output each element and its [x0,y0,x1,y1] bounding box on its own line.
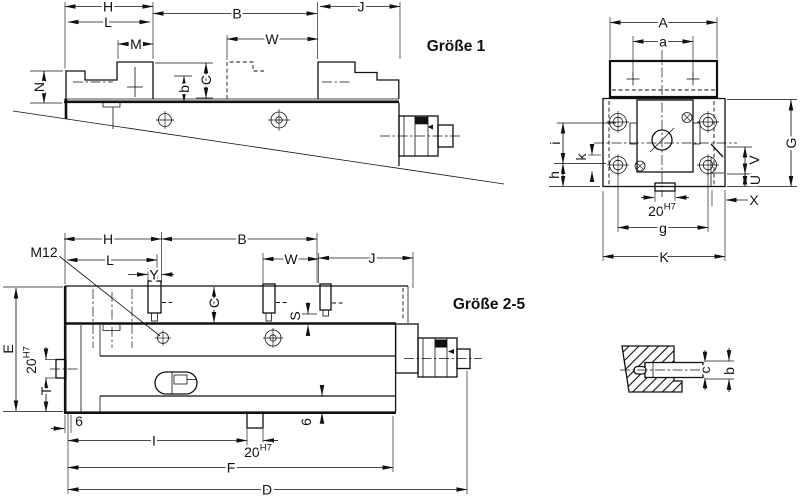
label-bv-I: I [152,433,156,449]
mounting-hole [268,109,290,131]
jaw-pin [148,281,161,321]
chip-notch [103,103,120,107]
label-tv-H: H [103,0,113,15]
label-bv-6-left: 6 [75,413,83,429]
end-view [549,17,797,261]
label-tv-M: M [130,36,142,52]
label-bv-Y: Y [149,267,159,283]
socket-screw [682,113,692,123]
label-ev-20h7: 20H7 [648,201,676,219]
label-tv-B: B [232,6,241,22]
label-ev-X: X [749,192,759,208]
jaw-pin [320,284,331,316]
label-ev-U: U [747,175,763,185]
label-ev-g: g [659,220,667,236]
label-bv-J: J [369,250,376,266]
label-bv-B: B [237,231,246,247]
label-ev-G: G [783,138,799,149]
center-guide [637,100,693,172]
dimension-labels: HLMBWJNCbGröße 1AaikhGVUX20H7gKM12HBLWJY… [0,0,799,498]
label-bv-M12: M12 [30,244,57,260]
phantom-jaw [227,62,264,99]
label-bv-20h7-rot: 20H7 [21,346,39,374]
spindle-drive [396,324,482,377]
label-bv-S: S [287,311,303,320]
label-bv-20h7-slot: 20H7 [244,442,272,460]
label-tv-N: N [31,82,47,92]
fixed-jaw [66,62,153,99]
label-bv-L: L [106,252,114,268]
label-bv-6-right: 6 [298,418,314,426]
movable-jaw [318,62,399,99]
section-detail [620,346,734,392]
mounting-hole [156,111,174,129]
bottom-side-view [3,232,482,494]
jaw-pin [263,284,275,321]
label-bv-E: E [0,344,16,353]
label-ev-K: K [659,249,669,265]
label-ev-i: i [547,141,563,144]
mounting-hole [263,328,283,348]
top-side-view [13,2,504,184]
jaw-plate [610,61,717,97]
thread-hole-m12 [155,330,171,346]
vise-dimension-drawing: HLMBWJNCbGröße 1AaikhGVUX20H7gKM12HBLWJY… [0,0,800,503]
chip-notch [103,325,120,331]
label-bv-H: H [103,231,113,247]
label-tv-J: J [358,0,365,15]
label-bv-D: D [262,482,272,498]
label-bv-W: W [284,251,298,267]
label-size1: Größe 1 [427,38,486,55]
base-tenon [247,413,263,428]
label-dt-b: b [721,367,737,375]
label-ev-a: a [659,34,667,50]
label-ev-h: h [546,171,562,179]
label-bv-C: C [206,298,222,308]
spindle-drive [380,116,461,156]
label-bv-T: T [38,386,54,395]
body-screw [607,111,629,133]
label-tv-L: L [104,14,112,30]
label-tv-W: W [265,31,279,47]
label-tv-C: C [198,75,214,85]
label-tv-b: b [176,85,192,93]
label-ev-V: V [746,155,762,165]
break-line [13,111,504,184]
technical-drawing-page: HLMBWJNCbGröße 1AaikhGVUX20H7gKM12HBLWJY… [0,0,800,503]
label-ev-k: k [573,153,589,161]
label-size25: Größe 2-5 [453,296,526,313]
slot-window [155,372,197,394]
label-bv-F: F [227,460,236,476]
label-ev-A: A [658,15,668,31]
label-dt-c: c [697,367,713,374]
